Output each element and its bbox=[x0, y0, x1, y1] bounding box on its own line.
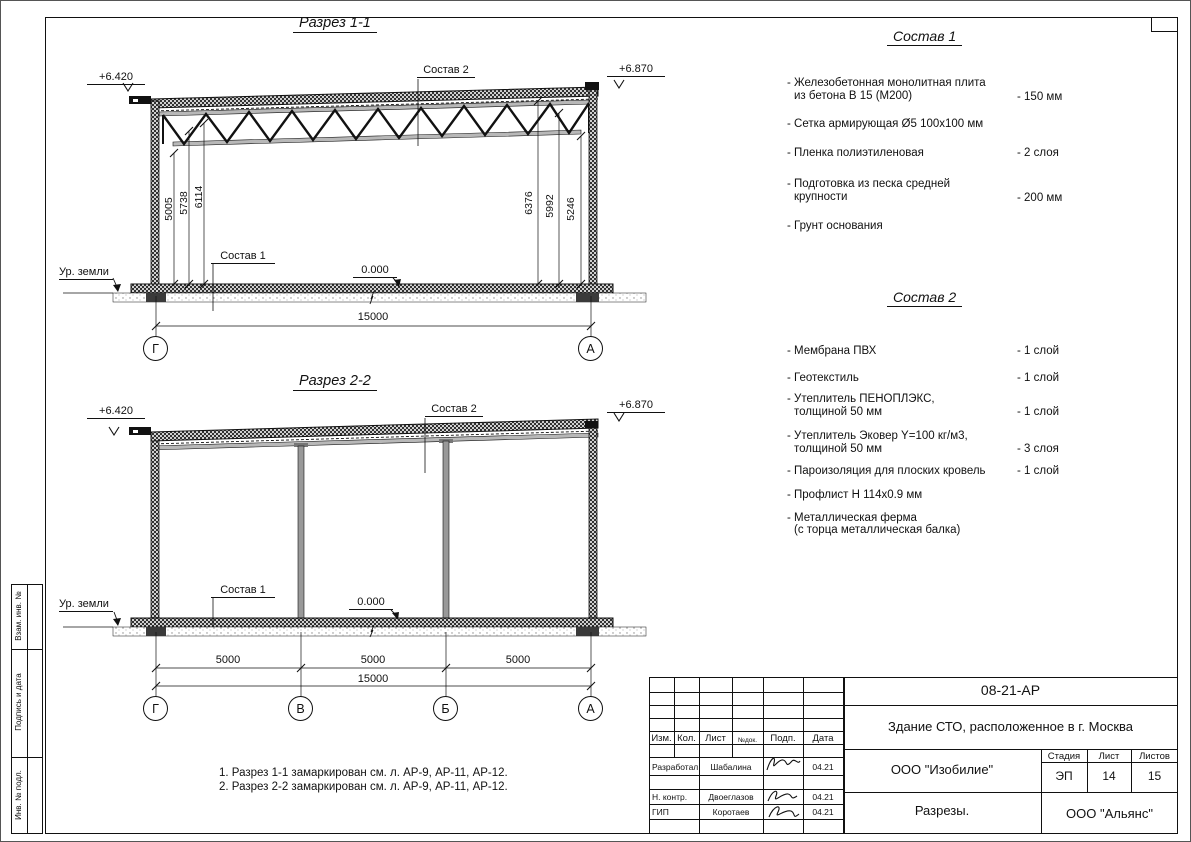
stage-value: ЭП bbox=[1041, 771, 1087, 782]
layer-value: - 2 слоя bbox=[1017, 147, 1059, 159]
tb-date: 04.21 bbox=[803, 807, 843, 818]
layer-value: - 1 слой bbox=[1017, 465, 1059, 477]
note-line: 1. Разрез 1-1 замаркирован см. л. АР-9, … bbox=[219, 767, 508, 779]
layer-item: толщиной 50 мм bbox=[794, 443, 882, 455]
sheet-title: Разрезы. bbox=[843, 803, 1041, 818]
section-1-title: Разрез 1-1 bbox=[293, 15, 377, 33]
side-strip-label: Инв. № подл. bbox=[13, 745, 25, 842]
tb-col-header: Дата bbox=[803, 733, 843, 744]
drawing-sheet: Взам. инв. № Подпись и дата Инв. № подл. bbox=[0, 0, 1191, 842]
grid-axis-bubble: Г bbox=[143, 696, 168, 721]
layer-value: - 1 слой bbox=[1017, 406, 1059, 418]
tb-date: 04.21 bbox=[803, 762, 843, 773]
dim-label: 6114 bbox=[193, 175, 205, 219]
layer-item: толщиной 50 мм bbox=[794, 406, 882, 418]
layer-item: - Пленка полиэтиленовая bbox=[787, 147, 924, 159]
ground-level-label: Ур. земли bbox=[59, 266, 113, 280]
tb-col-header: Лист bbox=[699, 733, 732, 744]
dim-label: 5738 bbox=[178, 181, 190, 225]
layer-item: - Пароизоляция для плоских кровель bbox=[787, 465, 986, 477]
dim-label-total: 15000 bbox=[343, 311, 403, 323]
sheets-total: 15 bbox=[1131, 771, 1178, 782]
layer-item: из бетона В 15 (М200) bbox=[794, 90, 912, 102]
layer-value: - 1 слой bbox=[1017, 345, 1059, 357]
grid-axis-bubble: В bbox=[288, 696, 313, 721]
level-mark: 0.000 bbox=[353, 264, 397, 278]
dim-label: 5992 bbox=[544, 184, 556, 228]
sheets-label: Листов bbox=[1131, 751, 1178, 762]
tb-role: Н. контр. bbox=[652, 792, 687, 803]
tb-role: Разработал bbox=[652, 762, 698, 773]
dim-label: 6376 bbox=[523, 181, 535, 225]
tb-name: Двоеглазов bbox=[699, 792, 763, 803]
layer-item: (с торца металлическая балка) bbox=[794, 524, 960, 536]
layer-item: - Мембрана ПВХ bbox=[787, 345, 876, 357]
tb-name: Шабалина bbox=[699, 762, 763, 773]
tb-name: Коротаев bbox=[699, 807, 763, 818]
layer-item: - Утеплитель ПЕНОПЛЭКС, bbox=[787, 393, 935, 405]
dim-label-total: 15000 bbox=[343, 673, 403, 685]
dim-label: 5000 bbox=[348, 654, 398, 666]
grid-axis-bubble: Б bbox=[433, 696, 458, 721]
corner-box bbox=[1151, 17, 1178, 32]
layer-item: крупности bbox=[794, 191, 847, 203]
signature bbox=[764, 754, 802, 776]
layer-value: - 3 слоя bbox=[1017, 443, 1059, 455]
grid-axis-bubble: Г bbox=[143, 336, 168, 361]
elevation-mark: +6.870 bbox=[607, 63, 665, 77]
ground-level-label: Ур. земли bbox=[59, 598, 113, 612]
sostav2-heading: Состав 2 bbox=[887, 289, 962, 307]
company-name: ООО "Изобилие" bbox=[843, 762, 1041, 777]
side-strip-label: Подпись и дата bbox=[13, 652, 25, 752]
tb-date: 04.21 bbox=[803, 792, 843, 803]
level-mark: 0.000 bbox=[349, 596, 393, 610]
layer-item: - Грунт основания bbox=[787, 220, 883, 232]
layer-item: - Подготовка из песка средней bbox=[787, 178, 950, 190]
layer-item: - Сетка армирующая Ø5 100x100 мм bbox=[787, 118, 983, 130]
layer-item: - Железобетонная монолитная плита bbox=[787, 77, 986, 89]
tb-col-header: Кол. bbox=[674, 733, 699, 744]
elevation-mark: +6.870 bbox=[607, 399, 665, 413]
layer-callout: Состав 2 bbox=[417, 64, 475, 78]
tb-col-header: Подп. bbox=[763, 733, 803, 744]
tb-role: ГИП bbox=[652, 807, 669, 818]
signature bbox=[764, 787, 802, 827]
dim-label: 5246 bbox=[565, 187, 577, 231]
layer-value: - 1 слой bbox=[1017, 372, 1059, 384]
layer-item: - Металлическая ферма bbox=[787, 512, 917, 524]
grid-axis-bubble: А bbox=[578, 336, 603, 361]
layer-item: - Геотекстиль bbox=[787, 372, 859, 384]
tb-col-header: №док. bbox=[732, 735, 763, 746]
stage-label: Стадия bbox=[1041, 751, 1087, 762]
layer-callout: Состав 1 bbox=[211, 250, 275, 264]
dim-label: 5000 bbox=[203, 654, 253, 666]
project-title: Здание СТО, расположенное в г. Москва bbox=[843, 719, 1178, 734]
layer-value: - 200 мм bbox=[1017, 192, 1062, 204]
section-2-title: Разрез 2-2 bbox=[293, 373, 377, 391]
layer-callout: Состав 1 bbox=[211, 584, 275, 598]
dim-label: 5005 bbox=[163, 187, 175, 231]
grid-axis-bubble: А bbox=[578, 696, 603, 721]
layer-callout: Состав 2 bbox=[425, 403, 483, 417]
elevation-mark: +6.420 bbox=[87, 71, 145, 85]
contractor-name: ООО "Альянс" bbox=[1041, 806, 1178, 821]
tb-col-header: Изм. bbox=[649, 733, 674, 744]
elevation-mark: +6.420 bbox=[87, 405, 145, 419]
dim-label: 5000 bbox=[493, 654, 543, 666]
sostav1-heading: Состав 1 bbox=[887, 28, 962, 46]
layer-item: - Профлист Н 114x0.9 мм bbox=[787, 489, 922, 501]
layer-item: - Утеплитель Эковер Y=100 кг/м3, bbox=[787, 430, 968, 442]
side-strip-label: Взам. инв. № bbox=[13, 566, 25, 666]
sheet-label: Лист bbox=[1087, 751, 1131, 762]
doc-number: 08-21-АР bbox=[843, 683, 1178, 698]
note-line: 2. Разрез 2-2 замаркирован см. л. АР-9, … bbox=[219, 781, 508, 793]
layer-value: - 150 мм bbox=[1017, 91, 1062, 103]
sheet-number: 14 bbox=[1087, 771, 1131, 782]
